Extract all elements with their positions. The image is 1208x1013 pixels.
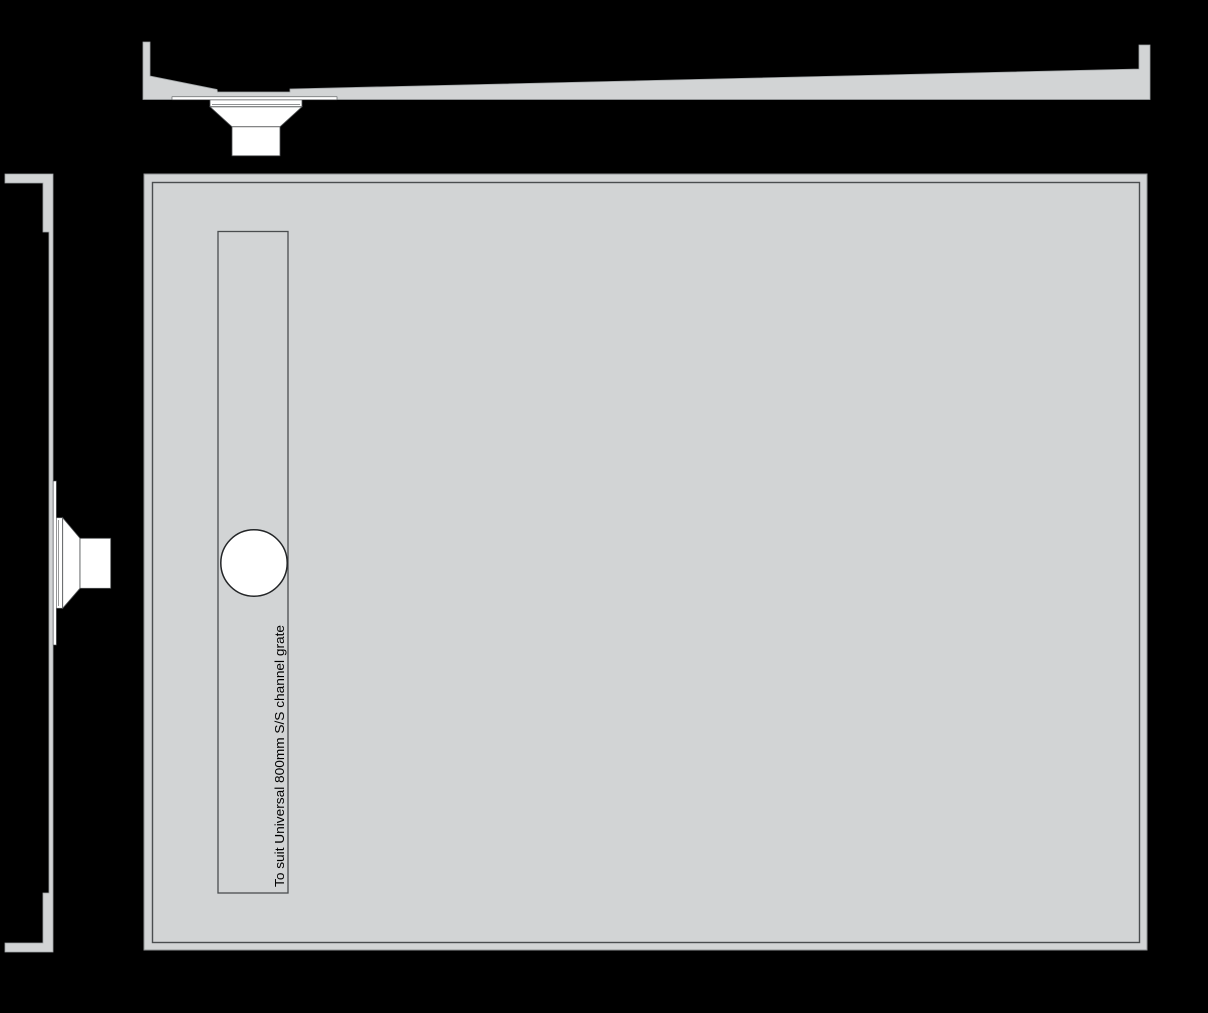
tray-outline	[144, 174, 1147, 950]
top-waste-body	[210, 107, 302, 127]
top-waste-outlet	[232, 127, 280, 156]
top-section-view	[143, 42, 1150, 156]
shower-tray-drawing: To suit Universal 800mm S/S channel grat…	[0, 0, 1208, 1013]
top-section-tray-profile	[143, 42, 1150, 100]
top-waste-flange	[210, 100, 302, 107]
technical-drawing-canvas: To suit Universal 800mm S/S channel grat…	[0, 0, 1208, 1013]
side-section-view	[5, 174, 111, 952]
side-waste-body	[63, 518, 80, 609]
top-tile-flange-line	[172, 97, 337, 100]
side-section-tray-profile	[5, 174, 53, 952]
waste-hole	[221, 530, 287, 596]
channel-grate-label: To suit Universal 800mm S/S channel grat…	[272, 625, 287, 887]
side-waste-outlet	[80, 538, 111, 588]
side-tile-flange-line	[53, 481, 56, 645]
plan-view: To suit Universal 800mm S/S channel grat…	[144, 174, 1147, 950]
